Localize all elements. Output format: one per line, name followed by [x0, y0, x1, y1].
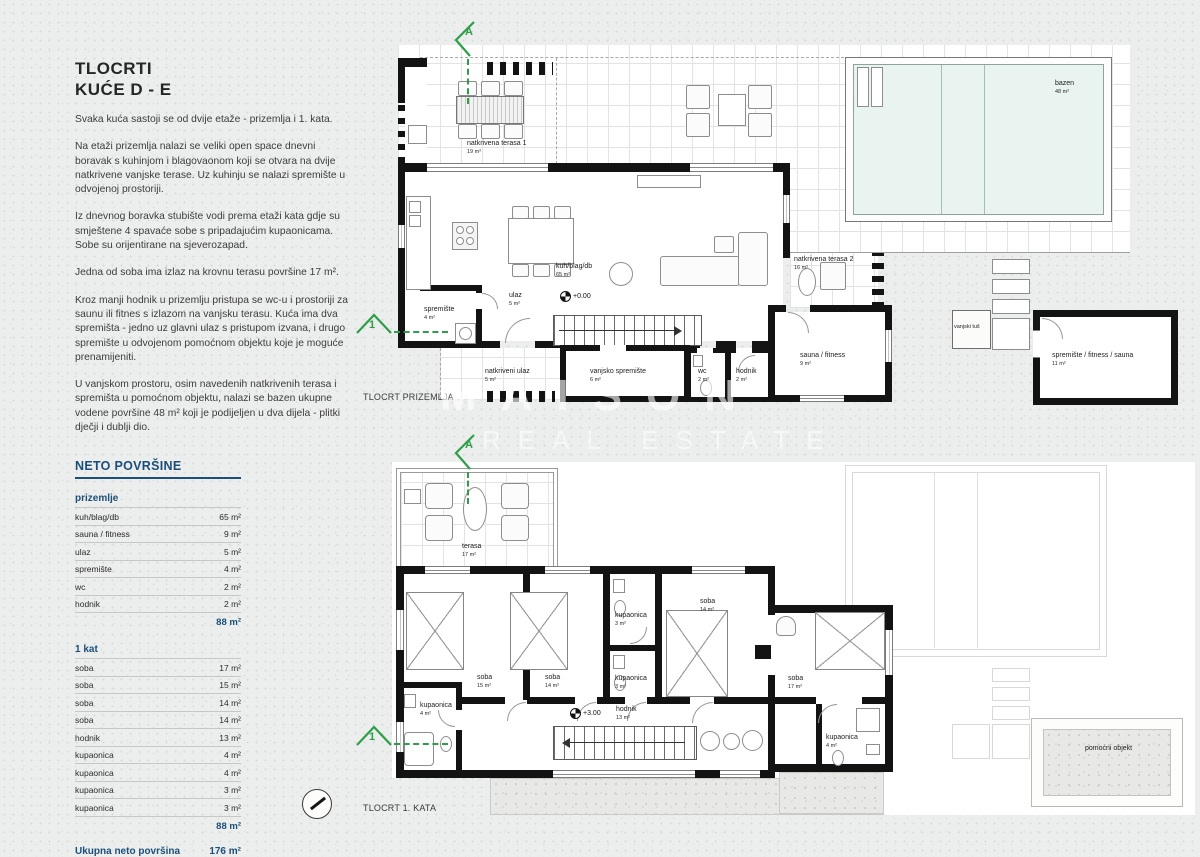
stairs-direction-line [570, 742, 685, 743]
lounge-chair [798, 268, 816, 296]
table-row: sauna / fitness9 m² [75, 525, 241, 543]
window [1033, 330, 1040, 358]
section-line [394, 331, 448, 333]
stairs-direction-arrow [674, 326, 682, 336]
window [425, 566, 470, 574]
ground-floor-caption: TLOCRT PRIZEMLJA [363, 392, 454, 402]
section-line [394, 743, 448, 745]
wall [462, 697, 505, 704]
room-label: natkrivena terasa 119 m² [467, 140, 527, 156]
stepping-stone-faint [992, 724, 1030, 759]
wall [775, 697, 816, 704]
wall [470, 566, 545, 574]
ottoman [609, 262, 633, 286]
sink [866, 744, 880, 755]
concrete-slab [779, 772, 884, 814]
bed [666, 610, 728, 697]
lounge-chair [501, 515, 529, 541]
window [398, 225, 405, 248]
description-paragraph: Svaka kuća sastoji se od dvije etaže - p… [75, 113, 353, 127]
window [800, 395, 844, 402]
window [545, 566, 590, 574]
sink [404, 694, 416, 708]
section-mark-chevron-icon [350, 722, 455, 762]
description-paragraph: Jedna od soba ima izlaz na krovnu terasu… [75, 266, 353, 280]
wall [714, 697, 775, 704]
section-mark-1: 1 [350, 722, 455, 762]
wall [476, 285, 482, 293]
lounge-chair [425, 515, 453, 541]
chair [458, 124, 477, 139]
stepping-stone-faint [992, 687, 1030, 701]
auxiliary-building [1031, 718, 1183, 807]
wall [548, 163, 690, 172]
north-arrow-icon [302, 789, 332, 819]
elevation-mark: +3.00 [570, 705, 601, 723]
stairs-direction-arrow [562, 738, 570, 748]
outdoor-fixture [404, 489, 421, 504]
table-row: ulaz5 m² [75, 542, 241, 560]
stove-burner [466, 237, 474, 245]
description-paragraph: Iz dnevnog boravka stubište vodi prema e… [75, 210, 353, 253]
chair [533, 206, 550, 219]
table-total-label: Ukupna neto površina [75, 846, 180, 857]
room-label: vanjski tuš [954, 324, 980, 331]
section-mark-1: 1 [350, 310, 455, 350]
auxiliary-building-roof [1043, 729, 1171, 796]
table-row: soba14 m² [75, 711, 241, 729]
wall [597, 697, 625, 704]
door-opening [600, 345, 626, 351]
table-row: wc2 m² [75, 577, 241, 595]
elevation-mark: +0.00 [560, 288, 591, 306]
pool-divider-faint [934, 472, 935, 648]
page-title-line2: KUĆE D - E [75, 79, 353, 100]
louvered-wall [398, 103, 405, 163]
side-passage [405, 58, 427, 164]
chair [533, 264, 550, 277]
wall [773, 163, 790, 172]
sink [613, 655, 625, 669]
wall [603, 574, 610, 700]
wall [398, 163, 427, 172]
door-opening [736, 348, 752, 353]
bed [815, 612, 885, 670]
pool-divider [984, 65, 985, 214]
table-row: hodnik13 m² [75, 728, 241, 746]
areas-table: NETO POVRŠINE prizemlje kuh/blag/db65 m²… [75, 459, 241, 857]
washing-machine-drum [459, 327, 472, 340]
chair [512, 206, 529, 219]
table-row: kupaonica3 m² [75, 798, 241, 816]
room-label: hodnik13 m² [616, 706, 637, 722]
stepping-stone [992, 279, 1030, 294]
table-row: hodnik2 m² [75, 595, 241, 613]
window [885, 630, 893, 675]
areas-table-title: NETO POVRŠINE [75, 459, 241, 479]
wall [768, 305, 775, 402]
room-label: kupaonica4 m² [420, 702, 452, 718]
room-label: sauna / fitness9 m² [800, 352, 845, 368]
tv-bench [637, 175, 701, 188]
wall [647, 697, 690, 704]
stairs-direction-line [559, 330, 677, 331]
room-label: wc2 m² [698, 368, 709, 384]
stove-burner [456, 226, 464, 234]
table-row: soba15 m² [75, 676, 241, 694]
chair [554, 206, 571, 219]
elevation-icon [560, 291, 571, 302]
page-title-line1: TLOCRTI [75, 58, 353, 79]
room-label: vanjsko spremište6 m² [590, 368, 646, 384]
stepping-stone [992, 318, 1030, 350]
kitchen-sink [409, 215, 421, 227]
chair [504, 124, 523, 139]
stepping-stone [992, 259, 1030, 274]
pool-steps [871, 67, 883, 107]
room-label: ulaz5 m² [509, 292, 522, 308]
armchair [776, 616, 796, 636]
section-line [467, 472, 469, 504]
armchair [748, 113, 772, 137]
table-subtotal: 88 m² [75, 816, 241, 834]
table-row: kupaonica4 m² [75, 746, 241, 764]
table-subtotal: 88 m² [75, 612, 241, 630]
wall [655, 574, 662, 700]
wall [476, 309, 482, 348]
wall [396, 770, 553, 778]
column [755, 645, 771, 659]
floor-plan-sheet: { "watermark": {"line1": "MAISON", "line… [0, 0, 1200, 848]
room-label: kupaonica3 m² [615, 675, 647, 691]
armchair [686, 113, 710, 137]
wall [862, 697, 893, 704]
stairs [553, 726, 697, 760]
window [690, 163, 773, 172]
shower [856, 708, 880, 732]
wall [527, 697, 575, 704]
window [553, 770, 695, 778]
window [720, 770, 760, 778]
room-label: spremište / fitness / sauna11 m² [1052, 352, 1133, 368]
table-row: spremište4 m² [75, 560, 241, 578]
window [396, 610, 404, 650]
wall [768, 566, 775, 615]
room-label: hodnik2 m² [736, 368, 757, 384]
armchair [714, 236, 734, 253]
first-floor-caption: TLOCRT 1. KATA [363, 803, 436, 813]
wall [590, 566, 692, 574]
room-label: natkriveni ulaz5 m² [485, 368, 530, 384]
toilet [832, 750, 844, 766]
table-row: kuh/blag/db65 m² [75, 507, 241, 525]
bed [406, 592, 464, 670]
watermark-tagline: REAL ESTATE [482, 427, 840, 453]
pergola-posts [872, 253, 884, 308]
table-section-heading: prizemlje [75, 493, 241, 507]
wall [716, 341, 736, 348]
wall [398, 58, 427, 67]
table-total-row: Ukupna neto površina 176 m² [75, 846, 241, 857]
stepping-stone [992, 299, 1030, 314]
sofa-chaise [738, 232, 768, 286]
dining-table [508, 218, 574, 264]
room-label: soba17 m² [788, 675, 803, 691]
sidebar: TLOCRTI KUĆE D - E Svaka kuća sastoji se… [75, 58, 353, 857]
pool-divider [941, 65, 942, 214]
table-row: kupaonica3 m² [75, 781, 241, 799]
window [885, 330, 892, 362]
stepping-stone-faint [992, 706, 1030, 720]
room-label: kupaonica4 m² [826, 734, 858, 750]
window [783, 195, 790, 223]
round-chair [723, 733, 740, 750]
kitchen-island [452, 222, 478, 250]
section-line [467, 59, 469, 104]
room-label: pomoćni objekt [1085, 745, 1132, 754]
wall [695, 770, 720, 778]
room-label: kupaonica3 m² [615, 612, 647, 628]
chair [512, 264, 529, 277]
section-mark-chevron-icon [440, 428, 510, 508]
table-row: soba17 m² [75, 658, 241, 676]
room-label: bazen 48 m² [1055, 80, 1074, 96]
stove-burner [456, 237, 464, 245]
window [692, 566, 745, 574]
wall [810, 305, 892, 312]
north-arrow-needle [310, 797, 326, 810]
wall [396, 682, 462, 688]
window [427, 163, 548, 172]
wall [456, 730, 462, 778]
round-chair [700, 731, 720, 751]
table-row: soba14 m² [75, 693, 241, 711]
stepping-stone-faint [952, 724, 990, 759]
room-label: kuh/blag/db65 m² [556, 263, 592, 279]
armchair [686, 85, 710, 109]
elevation-icon [570, 708, 581, 719]
section-mark-a: A [440, 428, 510, 508]
armchair [748, 85, 772, 109]
description-paragraph: Kroz manji hodnik u prizemlju pristupa s… [75, 294, 353, 365]
outdoor-fixture [408, 125, 427, 144]
coffee-table [718, 94, 746, 126]
table-row: kupaonica4 m² [75, 763, 241, 781]
terrace-dashed-line [556, 58, 557, 164]
table-section-heading: 1 kat [75, 644, 241, 658]
wall [768, 675, 775, 778]
sink [693, 355, 703, 367]
description-paragraph: Na etaži prizemlja nalazi se veliki open… [75, 140, 353, 197]
sofa [660, 256, 740, 286]
stepping-stone-faint [992, 668, 1030, 682]
bed [510, 592, 568, 670]
room-label: soba15 m² [477, 674, 492, 690]
table-total-value: 176 m² [209, 846, 241, 857]
pool-divider-faint [977, 472, 978, 648]
chair [481, 124, 500, 139]
round-chair [742, 730, 763, 751]
section-mark-chevron-icon [350, 310, 455, 350]
door-opening [697, 348, 713, 353]
room-label: soba14 m² [700, 598, 715, 614]
stairs [553, 315, 702, 346]
wall [607, 645, 662, 651]
room-label: natkrivena terasa 216 m² [794, 256, 854, 272]
description-paragraph: U vanjskom prostoru, osim navedenih natk… [75, 378, 353, 435]
entry-posts [487, 391, 555, 402]
pool-steps [857, 67, 869, 107]
sink [613, 579, 625, 593]
wall [398, 67, 405, 103]
wall [456, 682, 462, 710]
kitchen-sink [409, 201, 421, 213]
section-mark-chevron-icon [440, 15, 510, 115]
room-label: terasa17 m² [462, 543, 481, 559]
wall [775, 764, 893, 772]
room-label: soba14 m² [545, 674, 560, 690]
section-mark-a: A [440, 15, 510, 115]
stove-burner [466, 226, 474, 234]
